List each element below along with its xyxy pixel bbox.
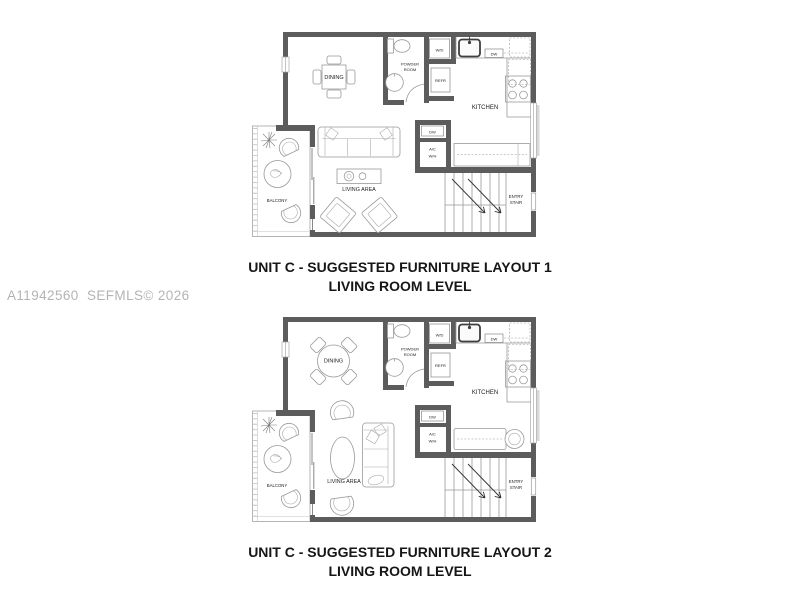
chaise-lounge [454, 429, 524, 450]
kitchen-label: KITCHEN [472, 390, 498, 396]
refrigerator-label: REFR [435, 78, 446, 83]
upper-cabinets [509, 345, 531, 370]
toilet [388, 324, 411, 338]
toilet [388, 39, 411, 53]
patio-table [264, 446, 291, 473]
plan-1-caption-line1: UNIT C - SUGGESTED FURNITURE LAYOUT 1 [0, 258, 800, 277]
dining-chair [327, 56, 341, 64]
entry-stair-label: STAIR [510, 485, 522, 490]
powder-sink [386, 359, 404, 377]
kitchen-bench [454, 144, 530, 167]
refrigerator-label: REFR [435, 363, 446, 368]
door-swing-arc [406, 369, 424, 387]
dishwasher-label: DW [491, 52, 498, 57]
kitchen-label: KITCHEN [472, 105, 498, 111]
dining-chair [327, 90, 341, 98]
entry-door [531, 478, 535, 495]
ac-wh-label: A/C [429, 147, 436, 152]
kitchen-sink [459, 322, 480, 342]
living-area-label: LIVING AREA [342, 187, 376, 193]
area-rug [331, 437, 355, 479]
ac-wh-label: A/C [429, 432, 436, 437]
coffee-table [337, 169, 381, 184]
sofa [363, 423, 395, 487]
door-swing-arc [406, 84, 424, 102]
dining-chair [347, 70, 355, 84]
kitchen-sink [459, 37, 480, 57]
left-window [282, 342, 289, 357]
washer-dryer-label: W/D [436, 333, 444, 338]
listing-photo-canvas: A11942560 SEFMLS© 2026 [0, 0, 800, 600]
plan-2-caption-line2: LIVING ROOM LEVEL [0, 562, 800, 581]
dining-chair [313, 70, 321, 84]
entry-stair-label: ENTRY [509, 194, 524, 199]
entry-stair-label: ENTRY [509, 479, 524, 484]
living-area-label: LIVING AREA [327, 479, 361, 485]
powder-room-label: ROOM [404, 67, 416, 72]
plan-1-caption: UNIT C - SUGGESTED FURNITURE LAYOUT 1 LI… [0, 258, 800, 295]
kitchen-window [531, 388, 540, 443]
balcony-label: BALCONY [267, 198, 288, 203]
powder-room-label: ROOM [404, 352, 416, 357]
left-window [282, 57, 289, 72]
washer-dryer-label: W/D [436, 48, 444, 53]
dishwasher-closet-label: DW [429, 415, 436, 420]
stairs [445, 458, 506, 517]
stove [506, 76, 531, 102]
ac-wh-label: W/H [429, 154, 437, 159]
upper-cabinets [509, 60, 531, 85]
sofa [318, 127, 400, 157]
stair-direction-arrows [452, 179, 501, 213]
stove [506, 361, 531, 387]
powder-sink [386, 74, 404, 92]
armchair [361, 197, 398, 234]
ac-wh-label: W/H [429, 439, 437, 444]
kitchen-window [531, 103, 540, 158]
upper-cabinets [510, 38, 531, 57]
plan-1-caption-line2: LIVING ROOM LEVEL [0, 277, 800, 296]
plan-2-caption: UNIT C - SUGGESTED FURNITURE LAYOUT 2 LI… [0, 543, 800, 580]
patio-table [264, 161, 291, 188]
floor-plan-layout-2: DINING POWDER ROOM W/D DW REFR KITCHEN D… [248, 297, 548, 529]
plan-2-caption-line1: UNIT C - SUGGESTED FURNITURE LAYOUT 2 [0, 543, 800, 562]
stair-direction-arrows [452, 464, 501, 498]
dining-label: DINING [324, 75, 343, 81]
entry-door [531, 193, 535, 210]
armchair [320, 197, 357, 234]
dining-label: DINING [324, 359, 343, 365]
stairs [445, 173, 506, 232]
dishwasher-label: DW [491, 337, 498, 342]
upper-cabinets [510, 323, 531, 342]
entry-stair-label: STAIR [510, 200, 522, 205]
powder-room-label: POWDER [401, 347, 419, 352]
balcony-label: BALCONY [267, 483, 288, 488]
armchair [330, 496, 356, 517]
floor-plan-layout-1: DINING POWDER ROOM W/D DW REFR KITCHEN D… [248, 12, 548, 244]
powder-room-label: POWDER [401, 62, 419, 67]
dishwasher-closet-label: DW [429, 130, 436, 135]
armchair [329, 399, 355, 420]
